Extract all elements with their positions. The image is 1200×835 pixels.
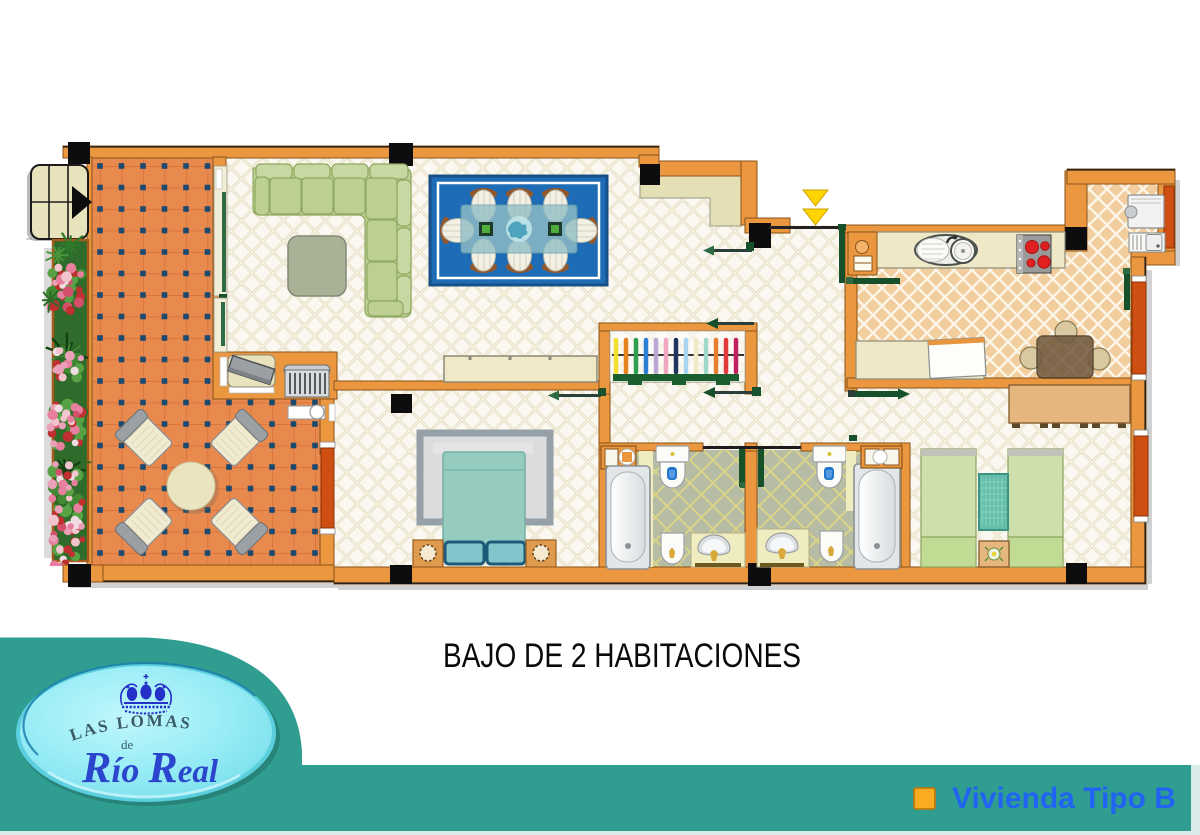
svg-text:BAJO DE 2 HABITACIONES: BAJO DE 2 HABITACIONES [443,637,801,675]
svg-text:Vivienda Tipo B: Vivienda Tipo B [952,782,1176,815]
